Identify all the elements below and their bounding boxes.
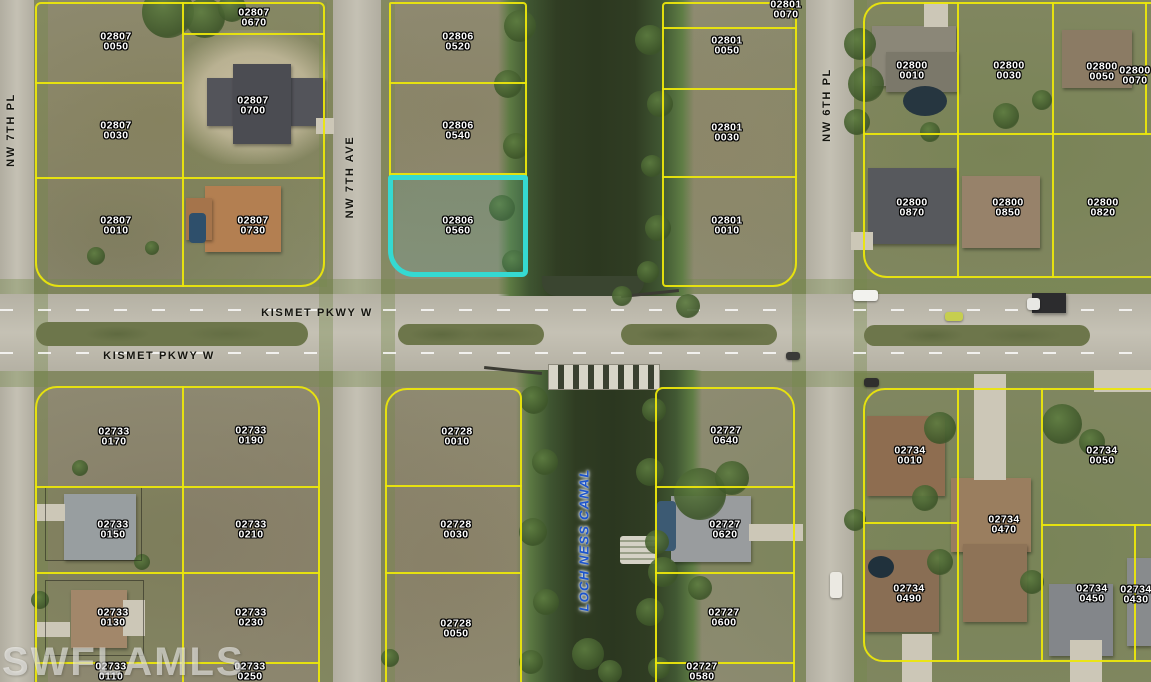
parcel-label-02734-0430: 02734 0430 (1120, 586, 1151, 605)
parcel-label-02800-0030: 02800 0030 (993, 62, 1024, 81)
parcel-label-02727-0600: 02727 0600 (708, 609, 739, 628)
parcel-label-02800-0050: 02800 0050 (1086, 63, 1117, 82)
parcel-label-02734-0470: 02734 0470 (988, 516, 1019, 535)
parcel-boundary (35, 572, 320, 574)
canal-culvert-bridge (548, 364, 660, 390)
parcel-boundary (35, 177, 325, 179)
parcel-label-02727-0620: 02727 0620 (709, 521, 740, 540)
canal-label-loch-ness-canal: LOCH NESS CANAL (577, 469, 592, 612)
parcel-label-02807-0730: 02807 0730 (237, 217, 268, 236)
parcel-boundary (863, 133, 1151, 135)
watermark: SWFLAMLS (2, 640, 245, 682)
parcel-boundary (182, 33, 325, 35)
parcel-label-02733-0130: 02733 0130 (97, 609, 128, 628)
parcel-label-02734-0010: 02734 0010 (894, 447, 925, 466)
parcel-label-02727-0580: 02727 0580 (686, 663, 717, 682)
parcel-label-02807-0030: 02807 0030 (100, 122, 131, 141)
parcel-boundary (182, 386, 184, 682)
parcel-label-02733-0210: 02733 0210 (235, 521, 266, 540)
parcel-label-02801-0070: 02801 0070 (770, 1, 801, 20)
parcel-boundary (655, 486, 795, 488)
vehicle (945, 312, 963, 321)
parcel-label-02806-0540: 02806 0540 (442, 122, 473, 141)
street-label-kismet-pkwy-w: KISMET PKWY W (103, 350, 215, 362)
parcel-label-02807-0050: 02807 0050 (100, 33, 131, 52)
tree (519, 518, 547, 546)
parcel-boundary (389, 82, 527, 84)
tree (533, 589, 559, 615)
parcel-label-02800-0010: 02800 0010 (896, 62, 927, 81)
parcel-boundary (35, 82, 182, 84)
parcel-label-02806-0560: 02806 0560 (442, 217, 473, 236)
parcel-boundary (385, 485, 522, 487)
parcel-block-boundary (35, 386, 320, 682)
parcel-boundary (1052, 2, 1054, 278)
lane-dashes (383, 309, 800, 311)
parcel-boundary (957, 388, 959, 662)
parcel-boundary (35, 486, 320, 488)
parcel-label-02807-0010: 02807 0010 (100, 217, 131, 236)
parcel-label-02728-0010: 02728 0010 (441, 428, 472, 447)
lane-dashes (853, 352, 1151, 354)
street-label-nw-6th-pl: NW 6TH PL (821, 68, 833, 142)
aerial-parcel-map: 02807 005002807 067002807 003002807 0700… (0, 0, 1151, 682)
parcel-label-02728-0050: 02728 0050 (440, 620, 471, 639)
parcel-block-boundary (35, 2, 325, 287)
parcel-boundary (662, 88, 797, 90)
parcel-label-02733-0190: 02733 0190 (235, 427, 266, 446)
parcel-label-02801-0050: 02801 0050 (711, 37, 742, 56)
street-label-nw-7th-pl: NW 7TH PL (5, 93, 17, 167)
parcel-label-02801-0010: 02801 0010 (711, 217, 742, 236)
parcel-label-02801-0030: 02801 0030 (711, 124, 742, 143)
tree (520, 386, 548, 414)
tree (676, 294, 700, 318)
parcel-label-02800-0820: 02800 0820 (1087, 199, 1118, 218)
parcel-boundary (662, 176, 797, 178)
parcel-boundary (957, 2, 959, 278)
road-median (621, 324, 777, 345)
street-label-nw-7th-ave: NW 7TH AVE (344, 136, 356, 219)
parcel-label-02734-0490: 02734 0490 (893, 585, 924, 604)
parcel-label-02733-0150: 02733 0150 (97, 521, 128, 540)
tree (612, 286, 632, 306)
parcel-label-02733-0230: 02733 0230 (235, 609, 266, 628)
road-median (398, 324, 544, 345)
parcel-boundary (863, 522, 957, 524)
parcel-label-02727-0640: 02727 0640 (710, 427, 741, 446)
parcel-label-02807-0670: 02807 0670 (238, 9, 269, 28)
tree (598, 660, 622, 682)
tree (532, 449, 558, 475)
parcel-label-02728-0030: 02728 0030 (440, 521, 471, 540)
parcel-boundary (655, 662, 795, 664)
street-label-kismet-pkwy-w: KISMET PKWY W (261, 307, 373, 319)
vehicle (853, 290, 878, 301)
vehicle (864, 378, 879, 387)
tree (637, 261, 659, 283)
parcel-boundary (655, 572, 795, 574)
road-median (864, 325, 1090, 346)
parcel-boundary (182, 2, 184, 287)
lane-dashes (383, 352, 800, 354)
tree (641, 155, 663, 177)
road-median (36, 322, 308, 346)
parcel-label-02734-0450: 02734 0450 (1076, 585, 1107, 604)
parcel-block-boundary (863, 2, 1151, 278)
parcel-label-02800-0850: 02800 0850 (992, 199, 1023, 218)
tree (635, 25, 665, 55)
parcel-boundary (662, 27, 797, 29)
parcel-label-02734-0050: 02734 0050 (1086, 447, 1117, 466)
tree (519, 650, 543, 674)
parcel-label-02806-0520: 02806 0520 (442, 33, 473, 52)
vehicle (1027, 298, 1040, 310)
parcel-label-02800-0070: 02800 0070 (1119, 67, 1150, 86)
parcel-label-02807-0700: 02807 0700 (237, 97, 268, 116)
vehicle (830, 572, 842, 598)
parcel-label-02733-0170: 02733 0170 (98, 428, 129, 447)
vehicle (786, 352, 800, 360)
parcel-label-02800-0870: 02800 0870 (896, 199, 927, 218)
lane-dashes (853, 309, 1151, 311)
parcel-boundary (385, 572, 522, 574)
